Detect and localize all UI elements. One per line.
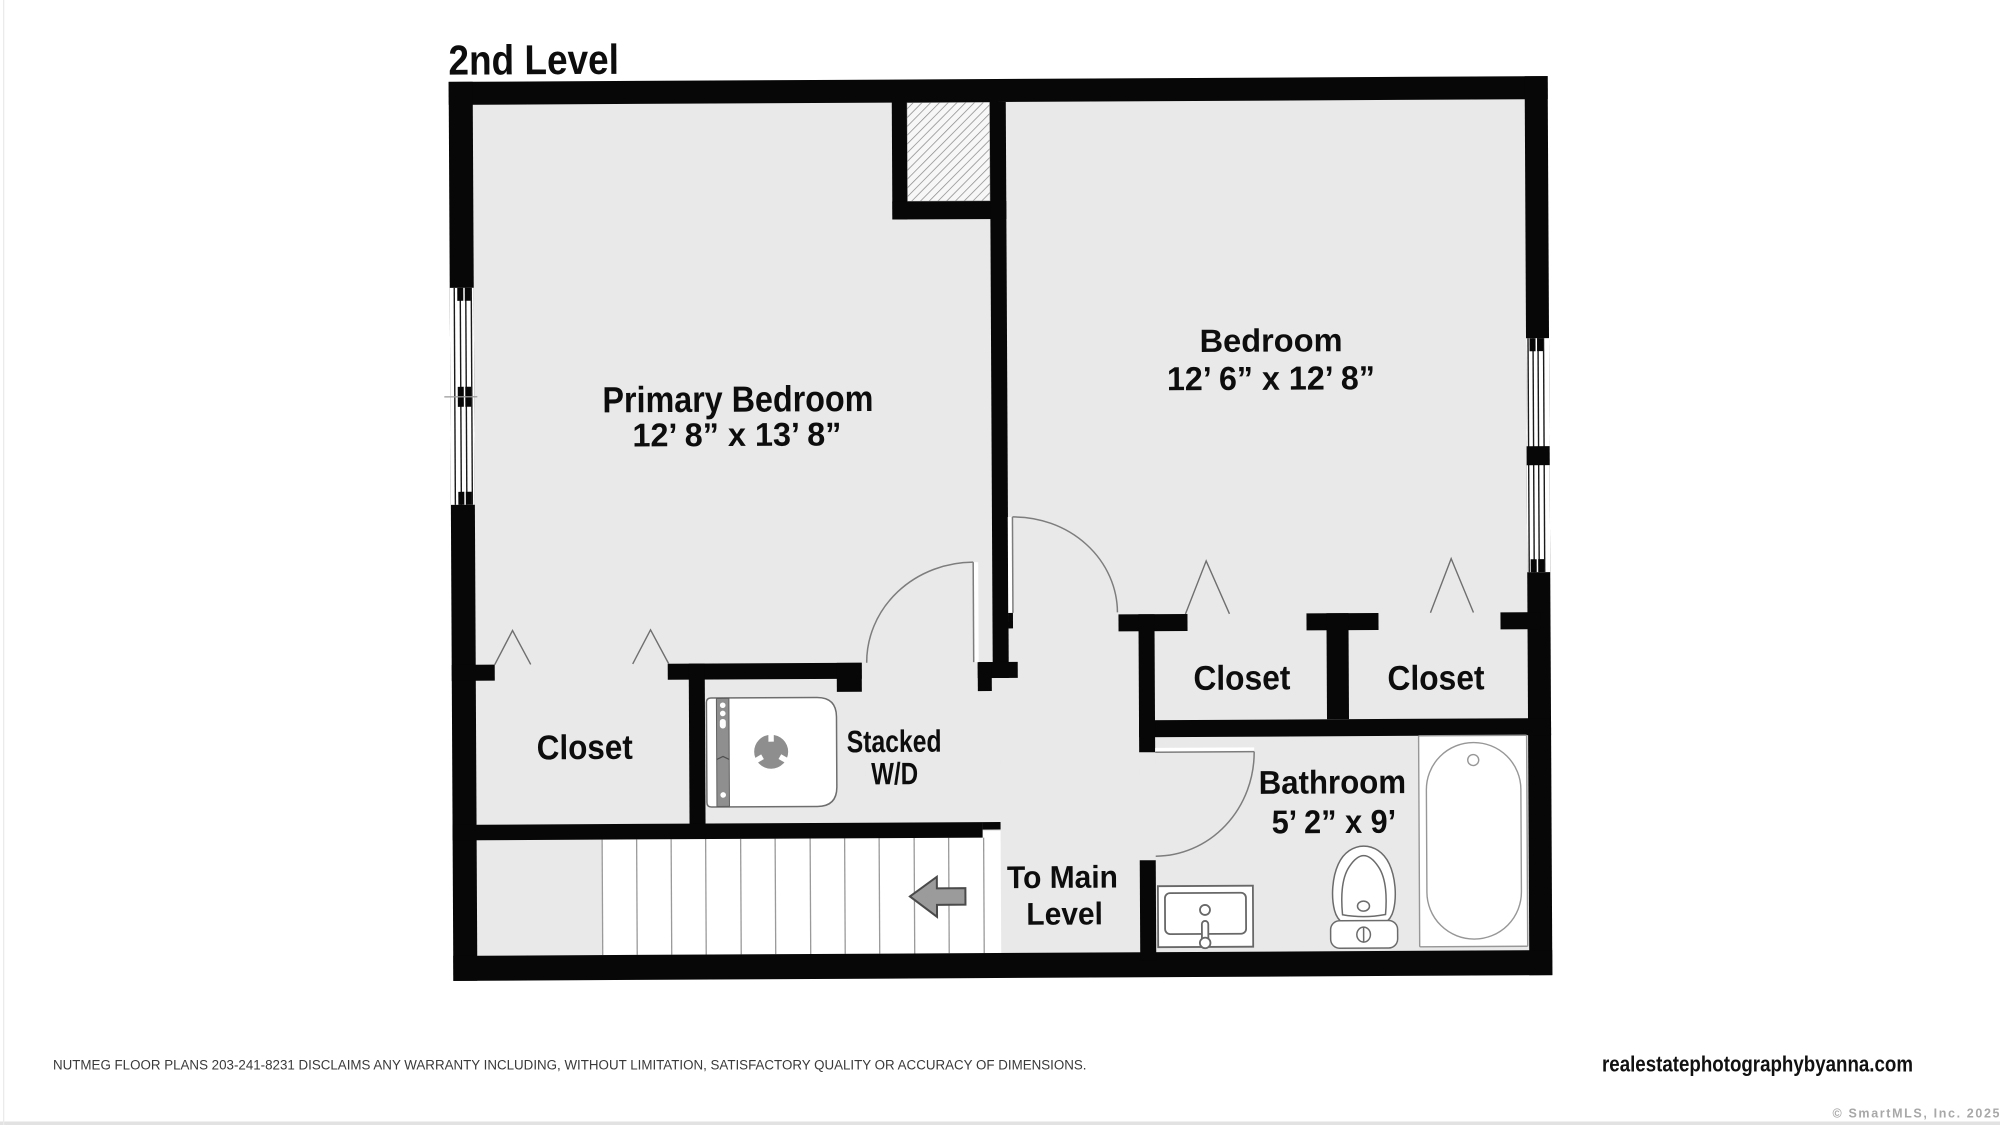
svg-text:Level: Level (1026, 895, 1103, 931)
svg-text:W/D: W/D (871, 756, 918, 791)
svg-text:Stacked: Stacked (847, 724, 942, 759)
svg-text:Primary Bedroom: Primary Bedroom (602, 378, 873, 420)
svg-text:12’ 6” x 12’ 8”: 12’ 6” x 12’ 8” (1167, 360, 1375, 398)
svg-text:5’ 2” x 9’: 5’ 2” x 9’ (1272, 803, 1397, 841)
svg-text:12’ 8” x 13’ 8”: 12’ 8” x 13’ 8” (632, 415, 841, 453)
svg-text:Bathroom: Bathroom (1259, 763, 1407, 801)
svg-text:Bedroom: Bedroom (1199, 322, 1342, 359)
svg-text:Closet: Closet (537, 729, 634, 768)
svg-text:Closet: Closet (1387, 659, 1485, 698)
svg-text:To Main: To Main (1007, 859, 1118, 896)
svg-text:realestatephotographybyanna.co: realestatephotographybyanna.com (1602, 1052, 1913, 1077)
svg-text:Closet: Closet (1193, 659, 1291, 698)
svg-text:2nd Level: 2nd Level (448, 36, 619, 84)
svg-text:© SmartMLS, Inc. 2025: © SmartMLS, Inc. 2025 (1833, 1107, 2000, 1121)
svg-text:NUTMEG FLOOR PLANS 203-241-823: NUTMEG FLOOR PLANS 203-241-8231 DISCLAIM… (53, 1058, 1087, 1073)
